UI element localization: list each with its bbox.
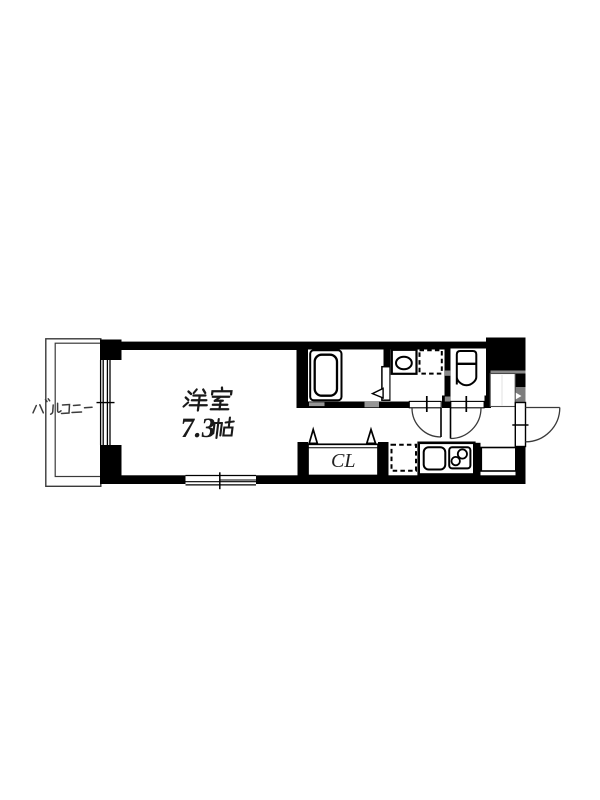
svg-text:7.3: 7.3	[178, 413, 217, 444]
svg-text:CL: CL	[331, 450, 355, 472]
